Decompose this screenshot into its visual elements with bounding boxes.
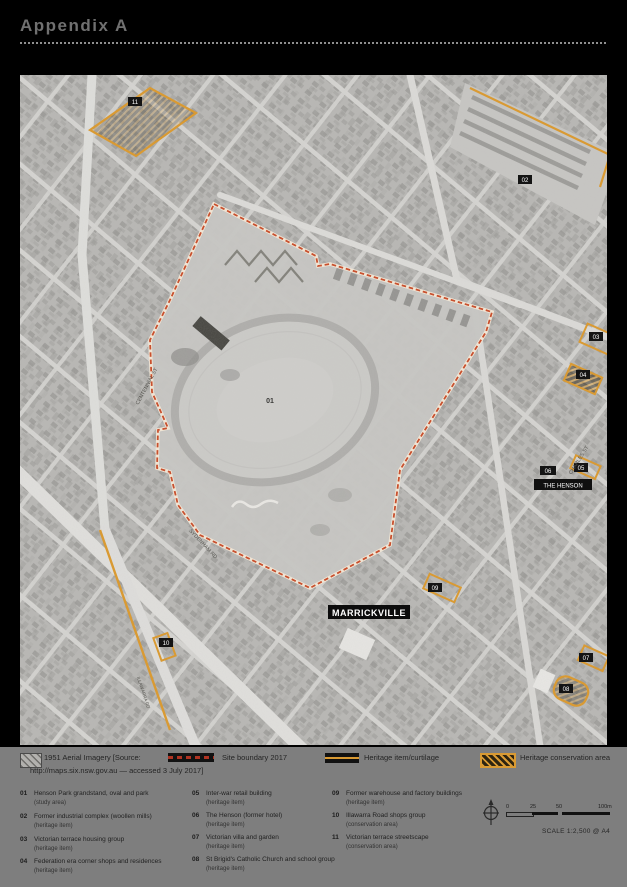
the-henson-label: THE HENSON	[543, 484, 582, 490]
list-item-number: 09	[332, 790, 339, 799]
heritage-item-swatch	[325, 753, 359, 763]
list-item-note: (study area)	[34, 799, 196, 807]
list-item-number: 06	[192, 812, 199, 821]
list-item-number: 02	[20, 813, 27, 822]
list-item-name: Victorian terrace housing group	[34, 836, 196, 845]
site-boundary-swatch	[168, 753, 214, 762]
legend-label-conservation: Heritage conservation area	[520, 753, 610, 762]
aerial-map-figure: MARRICKVILLE THE HENSON 01 02 03 04 05 0…	[20, 75, 607, 745]
list-item: 11 Victorian terrace streetscape (conser…	[332, 834, 484, 851]
report-page: Appendix A	[0, 0, 627, 887]
list-item-number: 11	[332, 834, 339, 843]
list-item-number: 10	[332, 812, 339, 821]
legend-label-boundary: Site boundary 2017	[222, 753, 287, 762]
list-item-name: St Brigid's Catholic Church and school g…	[206, 856, 356, 865]
list-item: 04 Federation era corner shops and resid…	[20, 858, 196, 875]
scale-bar: 0 25 50 100m	[506, 804, 612, 818]
aerial-map-svg: MARRICKVILLE THE HENSON 01 02 03 04 05 0…	[20, 75, 607, 745]
list-item-number: 08	[192, 856, 199, 865]
list-item: 02 Former industrial complex (woollen mi…	[20, 813, 196, 830]
marker-01: 01	[266, 398, 274, 405]
list-item-number: 07	[192, 834, 199, 843]
marker-03: 03	[593, 335, 600, 341]
list-item-note: (heritage item)	[34, 822, 196, 830]
marker-06: 06	[545, 469, 552, 475]
marker-05: 05	[578, 466, 585, 472]
list-item-note: (heritage item)	[346, 799, 484, 807]
list-item-name: Former warehouse and factory buildings	[346, 790, 484, 799]
legend-label-heritage-item: Heritage item/curtilage	[364, 753, 439, 762]
list-item-note: (conservation area)	[346, 821, 484, 829]
marker-08: 08	[563, 687, 570, 693]
list-item-name: Henson Park grandstand, oval and park	[34, 790, 196, 799]
list-item: 08 St Brigid's Catholic Church and schoo…	[192, 856, 356, 873]
scale-tick: 25	[530, 804, 536, 810]
title-dotted-rule	[20, 42, 606, 44]
marker-10: 10	[163, 641, 170, 647]
marker-09: 09	[432, 586, 439, 592]
list-item-number: 01	[20, 790, 27, 799]
list-item-name: Federation era corner shops and residenc…	[34, 858, 196, 867]
list-item-note: (heritage item)	[206, 865, 356, 873]
scale-bar-segment	[506, 812, 534, 817]
list-item-note: (heritage item)	[34, 867, 196, 875]
list-item-name: Former industrial complex (woollen mills…	[34, 813, 196, 822]
marrickville-label: MARRICKVILLE	[332, 608, 406, 618]
marker-02: 02	[522, 178, 529, 184]
legend-source-line: http://maps.six.nsw.gov.au — accessed 3 …	[30, 766, 330, 775]
scale-caption: SCALE 1:2,500 @ A4	[470, 828, 610, 835]
list-item-name: Victorian terrace streetscape	[346, 834, 484, 843]
list-item: 09 Former warehouse and factory building…	[332, 790, 484, 807]
list-item: 01 Henson Park grandstand, oval and park…	[20, 790, 196, 807]
marker-11: 11	[132, 100, 139, 106]
scale-tick: 0	[506, 804, 509, 810]
marker-07: 07	[583, 656, 590, 662]
list-item-number: 05	[192, 790, 199, 799]
scale-bar-segment	[532, 812, 558, 815]
north-arrow-icon	[480, 798, 502, 831]
list-item: 10 Illawarra Road shops group (conservat…	[332, 812, 484, 829]
list-item: 03 Victorian terrace housing group (heri…	[20, 836, 196, 853]
scale-tick: 100m	[598, 804, 612, 810]
list-item-note: (heritage item)	[34, 845, 196, 853]
list-item-number: 03	[20, 836, 27, 845]
list-item-note: (conservation area)	[346, 843, 484, 851]
marker-04: 04	[580, 373, 587, 379]
conservation-area-swatch	[480, 753, 516, 768]
scale-bar-segment	[562, 812, 610, 815]
page-title: Appendix A	[20, 16, 129, 36]
legend-label-aerial: 1951 Aerial Imagery [Source:	[44, 753, 141, 762]
list-item-number: 04	[20, 858, 27, 867]
scale-tick: 50	[556, 804, 562, 810]
list-item-name: Illawarra Road shops group	[346, 812, 484, 821]
